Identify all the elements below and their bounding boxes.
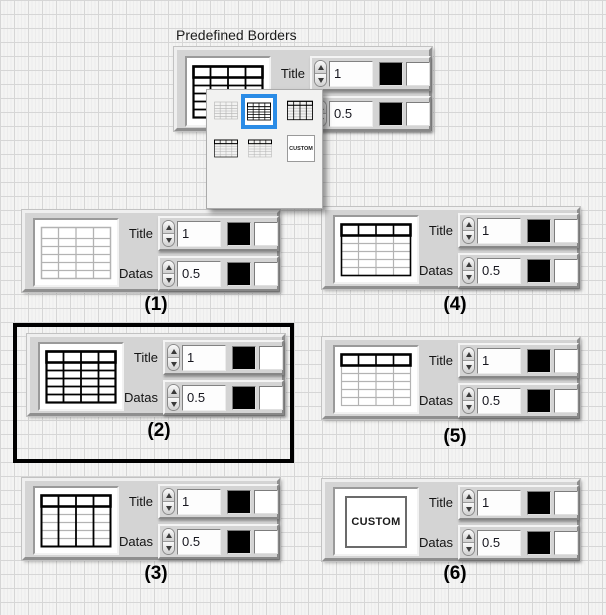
title-value-field[interactable]: 1 bbox=[477, 348, 521, 374]
datas-bg-color-swatch[interactable] bbox=[554, 531, 578, 555]
datas-fg-color-swatch[interactable] bbox=[227, 262, 251, 286]
table-black-header-columns-icon bbox=[287, 99, 313, 122]
datas-row: 0.5 bbox=[310, 96, 431, 131]
title-spinner[interactable] bbox=[462, 347, 475, 374]
custom-option-label: CUSTOM bbox=[289, 146, 313, 152]
datas-spinner[interactable] bbox=[462, 529, 475, 556]
title-fg-color-swatch[interactable] bbox=[527, 349, 551, 373]
border-style-panel-6: CUSTOM Title Datas 1 0.5 bbox=[322, 479, 580, 561]
datas-spinner[interactable] bbox=[162, 528, 175, 555]
title-spinner[interactable] bbox=[462, 489, 475, 516]
title-value-field[interactable]: 1 bbox=[329, 61, 373, 87]
spinner-down-icon[interactable] bbox=[463, 271, 474, 283]
datas-label: Datas bbox=[383, 263, 453, 278]
title-spinner[interactable] bbox=[162, 488, 175, 515]
title-spinner[interactable] bbox=[162, 220, 175, 247]
datas-bg-color-swatch[interactable] bbox=[254, 262, 278, 286]
title-bg-color-swatch[interactable] bbox=[554, 349, 578, 373]
title-value-field[interactable]: 1 bbox=[477, 218, 521, 244]
title-label: Title bbox=[383, 223, 453, 238]
spinner-down-icon[interactable] bbox=[463, 503, 474, 515]
option-table-black-header-and-body-outline[interactable] bbox=[214, 137, 238, 160]
title-row: 1 bbox=[158, 484, 279, 519]
spinner-down-icon[interactable] bbox=[163, 502, 174, 514]
title-bg-color-swatch[interactable] bbox=[254, 490, 278, 514]
title-bg-color-swatch[interactable] bbox=[254, 222, 278, 246]
datas-row: 0.5 bbox=[158, 524, 279, 559]
spinner-down-icon[interactable] bbox=[168, 358, 179, 370]
datas-fg-color-swatch[interactable] bbox=[227, 530, 251, 554]
title-label: Title bbox=[83, 226, 153, 241]
datas-row: 0.5 bbox=[458, 383, 579, 418]
border-style-panel-2: Title Datas 1 0.5 bbox=[27, 334, 285, 416]
panel-caption-6: (6) bbox=[420, 563, 490, 585]
spinner-up-icon[interactable] bbox=[163, 221, 174, 234]
title-label: Title bbox=[383, 495, 453, 510]
title-bg-color-swatch[interactable] bbox=[406, 62, 430, 86]
border-style-panel-1: Title Datas 1 0.5 bbox=[22, 210, 280, 292]
spinner-up-icon[interactable] bbox=[168, 345, 179, 358]
datas-value-field[interactable]: 0.5 bbox=[477, 258, 521, 284]
title-row: 1 bbox=[158, 216, 279, 251]
title-label: Title bbox=[83, 494, 153, 509]
panel-caption-3: (3) bbox=[121, 563, 191, 585]
title-row: 1 bbox=[458, 343, 579, 378]
title-bg-color-swatch[interactable] bbox=[554, 219, 578, 243]
spinner-down-icon[interactable] bbox=[163, 234, 174, 246]
datas-row: 0.5 bbox=[458, 253, 579, 288]
panel-caption-4: (4) bbox=[420, 294, 490, 316]
title-spinner[interactable] bbox=[314, 60, 327, 87]
title-row: 1 bbox=[310, 56, 431, 91]
datas-row: 0.5 bbox=[163, 380, 284, 415]
spinner-down-icon[interactable] bbox=[463, 543, 474, 555]
title-value-field[interactable]: 1 bbox=[477, 490, 521, 516]
option-table-all-gray[interactable] bbox=[214, 99, 238, 122]
spinner-down-icon[interactable] bbox=[163, 274, 174, 286]
datas-value-field[interactable]: 0.5 bbox=[477, 530, 521, 556]
spinner-up-icon[interactable] bbox=[463, 348, 474, 361]
title-fg-color-swatch[interactable] bbox=[232, 346, 256, 370]
title-spinner[interactable] bbox=[167, 344, 180, 371]
title-bg-color-swatch[interactable] bbox=[259, 346, 283, 370]
title-value-field[interactable]: 1 bbox=[182, 345, 226, 371]
table-all-gray-icon bbox=[214, 99, 238, 122]
datas-value-field[interactable]: 0.5 bbox=[177, 529, 221, 555]
datas-fg-color-swatch[interactable] bbox=[527, 531, 551, 555]
spinner-up-icon[interactable] bbox=[463, 218, 474, 231]
title-fg-color-swatch[interactable] bbox=[379, 62, 403, 86]
datas-bg-color-swatch[interactable] bbox=[554, 389, 578, 413]
table-all-black-icon bbox=[247, 100, 271, 123]
spinner-down-icon[interactable] bbox=[315, 74, 326, 86]
datas-value-field[interactable]: 0.5 bbox=[477, 388, 521, 414]
datas-fg-color-swatch[interactable] bbox=[527, 389, 551, 413]
option-table-black-header-only[interactable] bbox=[248, 137, 272, 160]
spinner-up-icon[interactable] bbox=[163, 261, 174, 274]
border-style-panel-4: Title Datas 1 0.5 bbox=[322, 207, 580, 289]
datas-label: Datas bbox=[88, 390, 158, 405]
spinner-up-icon[interactable] bbox=[163, 489, 174, 502]
datas-row: 0.5 bbox=[458, 525, 579, 560]
spinner-down-icon[interactable] bbox=[463, 361, 474, 373]
title-fg-color-swatch[interactable] bbox=[227, 222, 251, 246]
title-label: Title bbox=[88, 350, 158, 365]
datas-bg-color-swatch[interactable] bbox=[259, 386, 283, 410]
title-value-field[interactable]: 1 bbox=[177, 221, 221, 247]
datas-value-field[interactable]: 0.5 bbox=[182, 385, 226, 411]
datas-fg-color-swatch[interactable] bbox=[527, 259, 551, 283]
datas-bg-color-swatch[interactable] bbox=[406, 102, 430, 126]
spinner-down-icon[interactable] bbox=[463, 231, 474, 243]
spinner-up-icon[interactable] bbox=[463, 490, 474, 503]
title-fg-color-swatch[interactable] bbox=[527, 491, 551, 515]
title-bg-color-swatch[interactable] bbox=[554, 491, 578, 515]
labview-front-panel: { "window": { "label": "Predefined Borde… bbox=[0, 0, 606, 615]
panel-caption-5: (5) bbox=[420, 426, 490, 448]
border-style-panel-5: Title Datas 1 0.5 bbox=[322, 337, 580, 419]
title-label: Title bbox=[383, 353, 453, 368]
panel-caption-2: (2) bbox=[124, 420, 194, 442]
datas-value-field[interactable]: 0.5 bbox=[177, 261, 221, 287]
spinner-down-icon[interactable] bbox=[163, 542, 174, 554]
page-title: Predefined Borders bbox=[176, 27, 297, 43]
datas-label: Datas bbox=[383, 393, 453, 408]
option-table-all-black[interactable] bbox=[241, 94, 277, 129]
title-spinner[interactable] bbox=[462, 217, 475, 244]
datas-fg-color-swatch[interactable] bbox=[379, 102, 403, 126]
title-row: 1 bbox=[458, 485, 579, 520]
datas-bg-color-swatch[interactable] bbox=[554, 259, 578, 283]
datas-value-field[interactable]: 0.5 bbox=[329, 101, 373, 127]
title-row: 1 bbox=[163, 340, 284, 375]
border-style-panel-3: Title Datas 1 0.5 bbox=[22, 478, 280, 560]
datas-spinner[interactable] bbox=[462, 257, 475, 284]
datas-bg-color-swatch[interactable] bbox=[254, 530, 278, 554]
title-label: Title bbox=[235, 66, 305, 81]
title-value-field[interactable]: 1 bbox=[177, 489, 221, 515]
spinner-down-icon[interactable] bbox=[463, 401, 474, 413]
datas-spinner[interactable] bbox=[167, 384, 180, 411]
title-fg-color-swatch[interactable] bbox=[227, 490, 251, 514]
datas-spinner[interactable] bbox=[462, 387, 475, 414]
border-style-dropdown: CUSTOM bbox=[206, 89, 323, 209]
spinner-up-icon[interactable] bbox=[315, 61, 326, 74]
title-fg-color-swatch[interactable] bbox=[527, 219, 551, 243]
spinner-up-icon[interactable] bbox=[463, 258, 474, 271]
option-custom[interactable]: CUSTOM bbox=[287, 135, 315, 162]
datas-fg-color-swatch[interactable] bbox=[232, 386, 256, 410]
spinner-up-icon[interactable] bbox=[163, 529, 174, 542]
spinner-up-icon[interactable] bbox=[463, 530, 474, 543]
title-row: 1 bbox=[458, 213, 579, 248]
option-table-black-header-and-columns[interactable] bbox=[287, 99, 313, 122]
panel-caption-1: (1) bbox=[121, 294, 191, 316]
datas-label: Datas bbox=[83, 534, 153, 549]
spinner-up-icon[interactable] bbox=[168, 385, 179, 398]
datas-row: 0.5 bbox=[158, 256, 279, 291]
datas-label: Datas bbox=[83, 266, 153, 281]
table-black-header-only-icon bbox=[248, 137, 272, 160]
table-black-header-outline-icon bbox=[214, 137, 238, 160]
datas-spinner[interactable] bbox=[162, 260, 175, 287]
datas-label: Datas bbox=[383, 535, 453, 550]
spinner-down-icon[interactable] bbox=[168, 398, 179, 410]
spinner-up-icon[interactable] bbox=[463, 388, 474, 401]
